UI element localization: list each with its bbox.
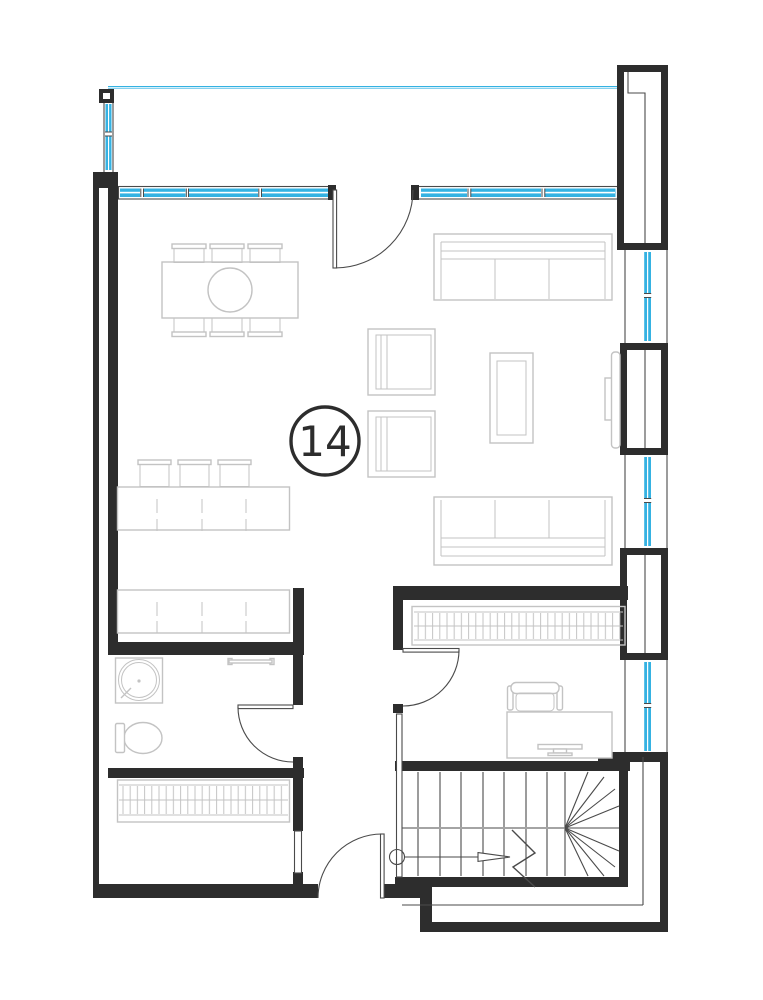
bedroom-right xyxy=(412,607,625,759)
north-window-band xyxy=(119,185,618,200)
towel-rail xyxy=(228,659,274,665)
wardrobe-left xyxy=(118,780,290,822)
living-area xyxy=(368,234,620,565)
staircase xyxy=(390,772,620,887)
wardrobe-right xyxy=(412,607,625,646)
kitchen-counter-lower xyxy=(118,590,290,633)
shower xyxy=(116,658,163,703)
bathroom-door xyxy=(238,705,293,762)
table-centerpiece xyxy=(208,268,252,312)
stair-winders xyxy=(565,772,619,876)
desk-chair xyxy=(508,683,563,712)
balcony-balustrade xyxy=(99,86,619,172)
dining-table xyxy=(162,262,298,318)
bedroom-right-door xyxy=(403,649,459,707)
balcony-door xyxy=(333,190,413,268)
entry-door xyxy=(318,834,384,898)
east-window-strips xyxy=(625,250,667,753)
floor-plan: 14 xyxy=(0,0,763,1000)
structural-columns xyxy=(617,65,668,660)
unit-number-badge: 14 xyxy=(291,407,359,475)
toilet xyxy=(116,723,163,754)
sofa-north xyxy=(434,234,612,300)
tv-unit xyxy=(605,352,620,448)
counter-lower-divisions xyxy=(157,602,246,633)
bedroom-left xyxy=(118,780,290,822)
coffee-table xyxy=(490,353,533,443)
armchair-1 xyxy=(368,329,435,395)
floor-plan-page: 14 xyxy=(0,0,763,1000)
bedroom-left-door xyxy=(295,831,302,873)
direction-arrow xyxy=(478,853,510,862)
bar-stools xyxy=(138,460,251,487)
walls xyxy=(93,172,668,932)
kitchen-counter-upper xyxy=(118,487,290,530)
unit-number-label: 14 xyxy=(298,417,351,466)
dining-chairs xyxy=(172,244,282,337)
counter-upper-divisions xyxy=(157,499,246,531)
kitchen xyxy=(118,460,290,633)
hall-stair-partition xyxy=(397,714,403,877)
sofa-south xyxy=(434,497,612,565)
dining-set xyxy=(162,244,298,337)
armchair-2 xyxy=(368,411,435,477)
stair-treads xyxy=(402,772,619,876)
